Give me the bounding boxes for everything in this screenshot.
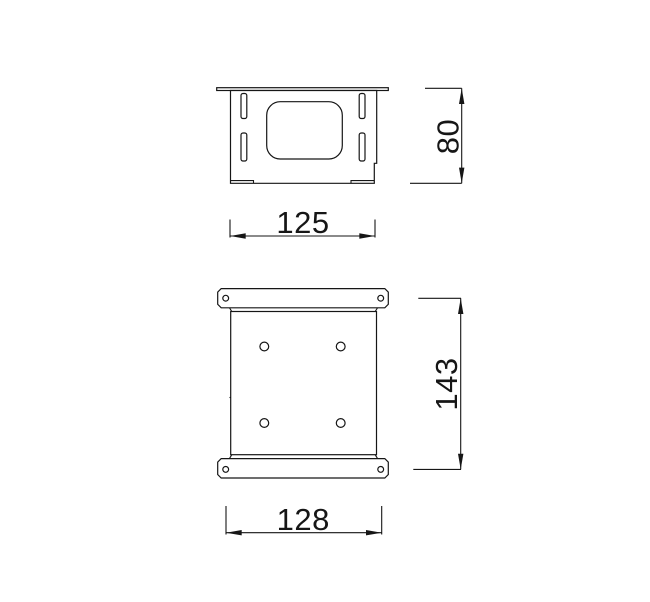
plan-view <box>218 289 389 478</box>
front-view-slot-lower-right <box>359 133 365 161</box>
plan-view-top-bar-hole-left <box>223 295 229 301</box>
dim-125-arrow-right-icon <box>359 233 375 238</box>
dim-143-label: 143 <box>429 357 464 410</box>
plate-hole-bottom-right <box>336 419 345 428</box>
dim-143-arrow-down-icon <box>458 454 463 470</box>
dimension-plan-width: 128 <box>226 502 382 537</box>
dimension-front-height: 80 <box>410 88 466 183</box>
plan-view-plate <box>231 312 377 455</box>
plate-hole-bottom-left <box>260 419 269 428</box>
dim-128-arrow-right-icon <box>366 530 382 535</box>
plan-view-bottom-bar-hole-left <box>223 467 229 473</box>
front-view-slot-upper-left <box>241 94 247 119</box>
dim-128-arrow-left-icon <box>226 530 242 535</box>
dim-80-arrow-up-icon <box>459 88 464 104</box>
front-view <box>217 88 389 184</box>
dimension-plan-height: 143 <box>413 298 464 469</box>
dim-80-label: 80 <box>431 119 466 154</box>
plan-view-bottom-bar <box>218 459 389 478</box>
plan-view-bottom-bar-hole-right <box>378 467 384 473</box>
plan-view-top-bar-hole-right <box>378 295 384 301</box>
technical-drawing-canvas: 80 125 <box>0 0 650 602</box>
plate-hole-top-left <box>260 342 269 351</box>
dimension-front-width: 125 <box>230 205 375 240</box>
dim-125-label: 125 <box>276 205 329 240</box>
dim-143-arrow-up-icon <box>458 298 463 314</box>
front-view-center-cutout <box>267 102 343 159</box>
dim-125-arrow-left-icon <box>230 233 246 238</box>
plan-view-top-bar <box>218 289 389 308</box>
plate-hole-top-right <box>336 342 345 351</box>
dim-128-label: 128 <box>277 502 330 537</box>
front-view-slot-lower-left <box>241 133 247 161</box>
front-view-slot-upper-right <box>359 94 365 119</box>
dim-80-arrow-down-icon <box>459 168 464 184</box>
technical-drawing-page: 80 125 <box>0 0 650 602</box>
